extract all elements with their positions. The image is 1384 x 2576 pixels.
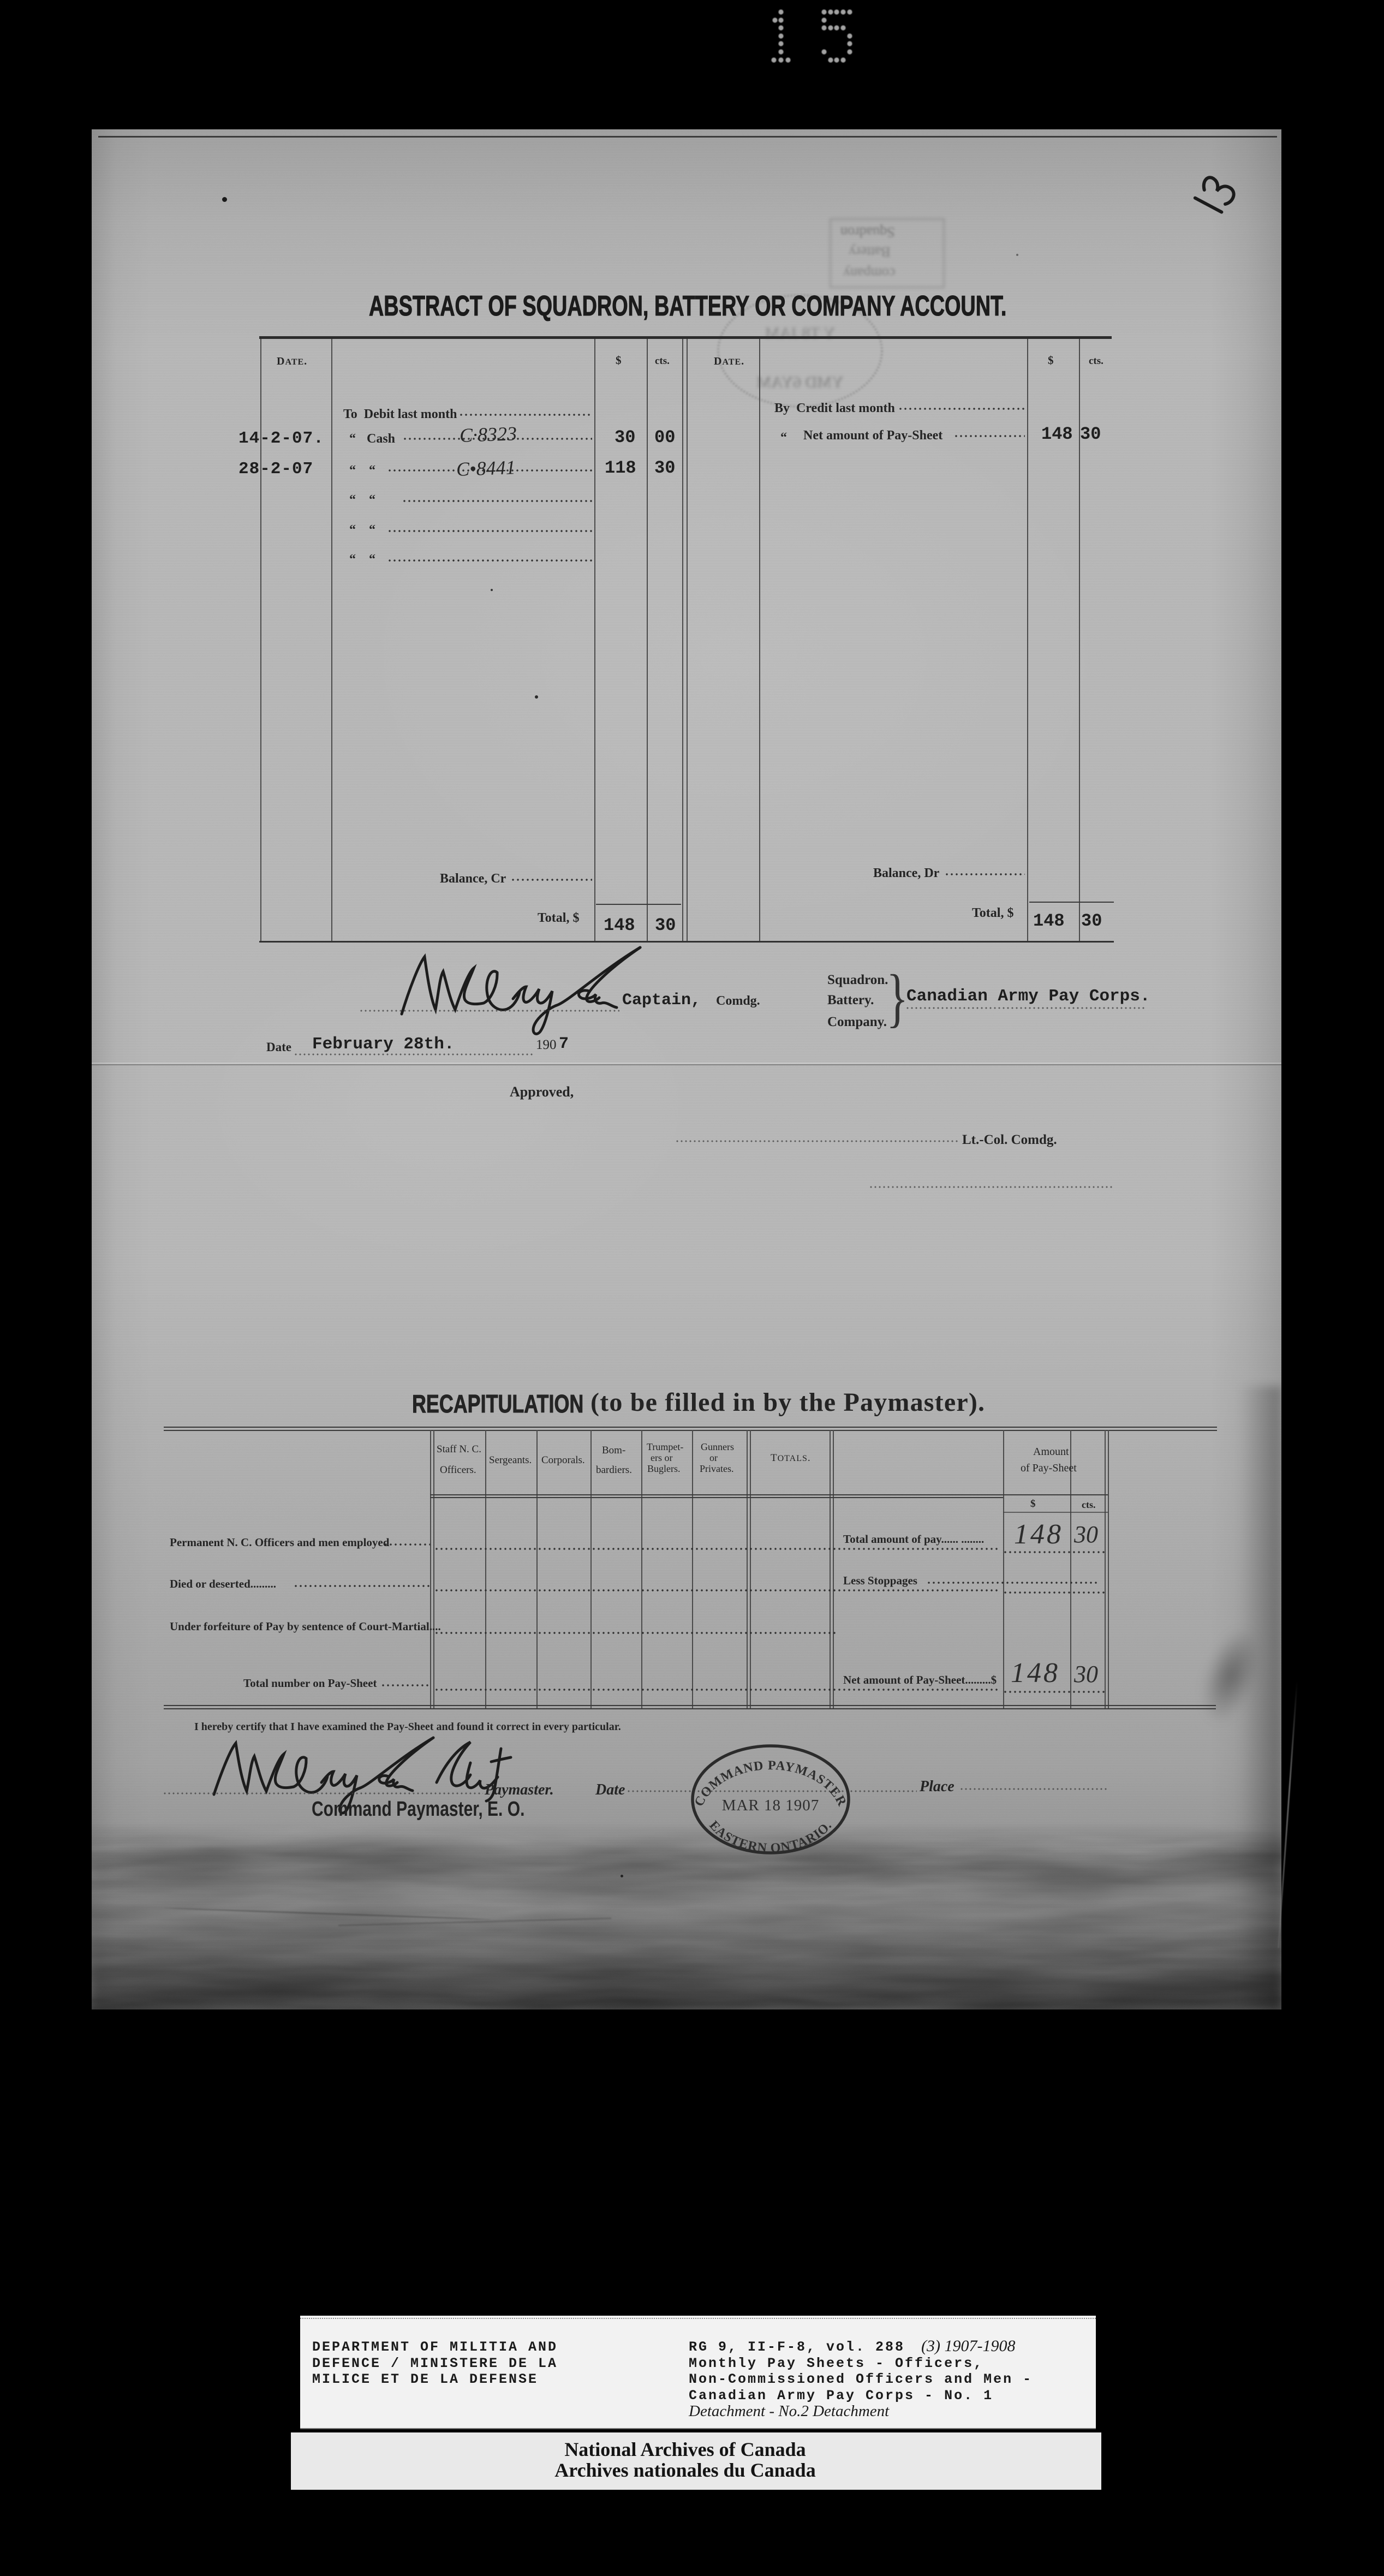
svg-text:MAR 18 1907: MAR 18 1907: [722, 1797, 820, 1814]
svg-text:EASTERN ONTARIO.: EASTERN ONTARIO.: [706, 1818, 834, 1856]
svg-text:Y T8 JAM: Y T8 JAM: [765, 324, 835, 342]
svg-text:YMD 6YAM: YMD 6YAM: [756, 373, 843, 391]
